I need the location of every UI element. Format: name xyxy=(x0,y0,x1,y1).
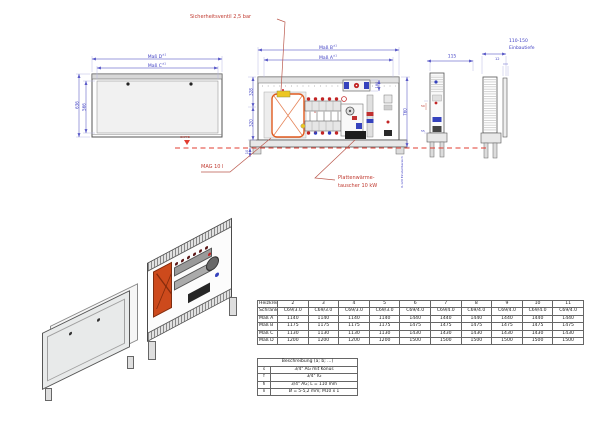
table-cell: 1130 xyxy=(278,330,309,337)
legend-title: Beschreibung (a; b; ...) xyxy=(258,359,358,367)
port-label-a-top: a xyxy=(314,110,316,114)
dim-label-50: 50 xyxy=(421,104,425,108)
table-row: SchranktypC69/3.0C69/3.0C69/3.0C69/3.0C6… xyxy=(258,308,584,315)
legend-table: Beschreibung (a; b; ...) s3/4" AG mit Ko… xyxy=(257,358,358,396)
table-cell: 1440 xyxy=(400,315,431,322)
table-cell: 11 xyxy=(553,301,584,308)
mag-annotation: MAG 10 l xyxy=(201,164,223,170)
table-row: Heizkreise234567891011 xyxy=(258,301,584,308)
table-cell: 1200 xyxy=(339,338,370,345)
dim-label-566: 566 xyxy=(82,103,87,111)
size-table: Heizkreise234567891011SchranktypC69/3.0C… xyxy=(257,300,584,345)
table-cell: Ø = 5-5,2 mm; M10 x 1 xyxy=(271,389,358,396)
table-cell: 7 xyxy=(430,301,461,308)
table-cell: 1475 xyxy=(400,323,431,330)
dim-label-115: 115 xyxy=(448,55,457,60)
table-cell: 1140 xyxy=(278,315,309,322)
table-cell: 1475 xyxy=(461,323,492,330)
table-cell: 1430 xyxy=(461,330,492,337)
table-cell: 1430 xyxy=(492,330,523,337)
table-cell: 1440 xyxy=(553,315,584,322)
dim-label-760: 760 xyxy=(403,108,408,116)
table-cell: 1130 xyxy=(369,330,400,337)
floor-level-annotation: OKFFB xyxy=(180,135,190,139)
table-row: Maß A11401140114011401440144014401440144… xyxy=(258,315,584,322)
table-cell: 1175 xyxy=(278,323,309,330)
table-cell: C69/4.0 xyxy=(461,308,492,315)
table-cell: 3/4" IG xyxy=(271,374,358,381)
safety-valve-annotation: Sicherheitsventil 2,5 bar xyxy=(190,14,251,20)
table-cell: 1200 xyxy=(369,338,400,345)
table-cell: 6 xyxy=(400,301,431,308)
table-row: Maß C11301130113011301430143014301430143… xyxy=(258,330,584,337)
table-cell: 1500 xyxy=(400,338,431,345)
table-cell: 1140 xyxy=(339,315,370,322)
table-cell: 1140 xyxy=(369,315,400,322)
table-row: f3/4" IG xyxy=(258,374,358,381)
table-cell: 1440 xyxy=(522,315,553,322)
table-cell: 5 xyxy=(369,301,400,308)
iso-blue-valve xyxy=(215,272,219,278)
table-cell: 3/4" AG; L = 110 mm xyxy=(271,381,358,388)
table-cell: 1500 xyxy=(430,338,461,345)
table-cell: Maß B xyxy=(258,323,278,330)
flow-component xyxy=(343,80,370,91)
safety-valve-shape xyxy=(277,91,290,97)
table-cell: 1500 xyxy=(522,338,553,345)
dim-label-mass-a: Maß A±1 xyxy=(319,53,337,61)
adjust-range-label: 0-120 Einstellbereich xyxy=(400,156,404,188)
dim-label-mass-d: Maß D±1 xyxy=(148,52,167,60)
table-cell: C69/4.0 xyxy=(553,308,584,315)
table-cell: 1500 xyxy=(492,338,523,345)
table-cell: 1430 xyxy=(430,330,461,337)
heat-exchanger-annotation-line2: tauscher 10 kW xyxy=(338,183,377,189)
table-cell: 1175 xyxy=(339,323,370,330)
dim-label-mass-c: Maß C±1 xyxy=(148,61,166,69)
table-cell: Heizkreise xyxy=(258,301,278,308)
heat-exchanger-shape xyxy=(345,131,366,139)
table-cell: C69/3.0 xyxy=(308,308,339,315)
side-view-1 xyxy=(424,60,473,157)
table-cell: 2 xyxy=(278,301,309,308)
elevation-view xyxy=(248,47,410,157)
table-cell: Schranktyp xyxy=(258,308,278,315)
technical-drawing-sheet: Maß D±1 Maß C±1 636 566 Maß B±1 Maß A±1 … xyxy=(0,0,600,425)
table-cell: C69/4.0 xyxy=(522,308,553,315)
table-row: Maß D12001200120012001500150015001500150… xyxy=(258,338,584,345)
table-cell: 8 xyxy=(461,301,492,308)
floor-level-marker xyxy=(184,140,190,145)
table-cell: 1130 xyxy=(308,330,339,337)
table-cell: C69/3.0 xyxy=(339,308,370,315)
table-cell: 1200 xyxy=(308,338,339,345)
iso-foot xyxy=(127,356,134,369)
table-cell: s xyxy=(258,366,271,373)
table-cell: 10 xyxy=(522,301,553,308)
dim-label-328: 328 xyxy=(249,88,254,96)
dim-label-12: 12 xyxy=(495,57,500,61)
dim-label-10: 10 xyxy=(245,150,249,155)
table-cell: 1430 xyxy=(522,330,553,337)
table-row: nØ = 5-5,2 mm; M10 x 1 xyxy=(258,389,358,396)
table-cell: f xyxy=(258,374,271,381)
table-cell: 1140 xyxy=(308,315,339,322)
port-label-a-bottom: a xyxy=(314,130,316,134)
table-cell: 1175 xyxy=(369,323,400,330)
table-cell: 9 xyxy=(492,301,523,308)
table-cell: 1440 xyxy=(492,315,523,322)
dim-label-55: 55 xyxy=(421,129,425,133)
table-cell: 4 xyxy=(339,301,370,308)
dim-label-320: 320 xyxy=(249,119,254,127)
table-row: Maß B11751175117511751475147514751475147… xyxy=(258,323,584,330)
table-row: h3/4" AG; L = 110 mm xyxy=(258,381,358,388)
table-cell: 1175 xyxy=(308,323,339,330)
table-cell: C69/4.0 xyxy=(492,308,523,315)
table-cell: Maß D xyxy=(258,338,278,345)
table-cell: 1200 xyxy=(278,338,309,345)
table-cell: 1475 xyxy=(522,323,553,330)
depth-range-label: 110-150 xyxy=(509,39,528,44)
table-cell: 1440 xyxy=(461,315,492,322)
dim-label-mass-b: Maß B±1 xyxy=(319,43,337,51)
door-plate-shape xyxy=(503,78,507,137)
table-cell: Maß C xyxy=(258,330,278,337)
table-cell: 3/4" AG mit Konus xyxy=(271,366,358,373)
table-cell: C69/4.0 xyxy=(400,308,431,315)
side-view-2 xyxy=(481,54,508,158)
table-cell: 1430 xyxy=(553,330,584,337)
dim-label-636: 636 xyxy=(75,101,80,109)
dim-label-180: 180 xyxy=(375,82,379,89)
table-cell: n xyxy=(258,389,271,396)
table-cell: C69/3.0 xyxy=(369,308,400,315)
table-cell: 3 xyxy=(308,301,339,308)
iso-leg xyxy=(148,341,156,360)
table-cell: 1475 xyxy=(553,323,584,330)
table-cell: h xyxy=(258,381,271,388)
depth-text-label: Einbautiefe xyxy=(509,46,535,51)
table-cell: 1440 xyxy=(430,315,461,322)
iso-foot xyxy=(45,388,52,401)
iso-mag-vessel xyxy=(153,262,172,318)
iso-leg xyxy=(229,297,237,316)
table-cell: 1475 xyxy=(430,323,461,330)
table-cell: 1500 xyxy=(553,338,584,345)
table-cell: 1130 xyxy=(339,330,370,337)
table-cell: 1500 xyxy=(461,338,492,345)
table-cell: C69/4.0 xyxy=(430,308,461,315)
table-row: s3/4" AG mit Konus xyxy=(258,366,358,373)
table-cell: Maß A xyxy=(258,315,278,322)
table-cell: 1475 xyxy=(492,323,523,330)
heat-exchanger-annotation-line1: Plattenwärme- xyxy=(338,175,375,181)
table-cell: 1430 xyxy=(400,330,431,337)
table-cell: C69/3.0 xyxy=(278,308,309,315)
